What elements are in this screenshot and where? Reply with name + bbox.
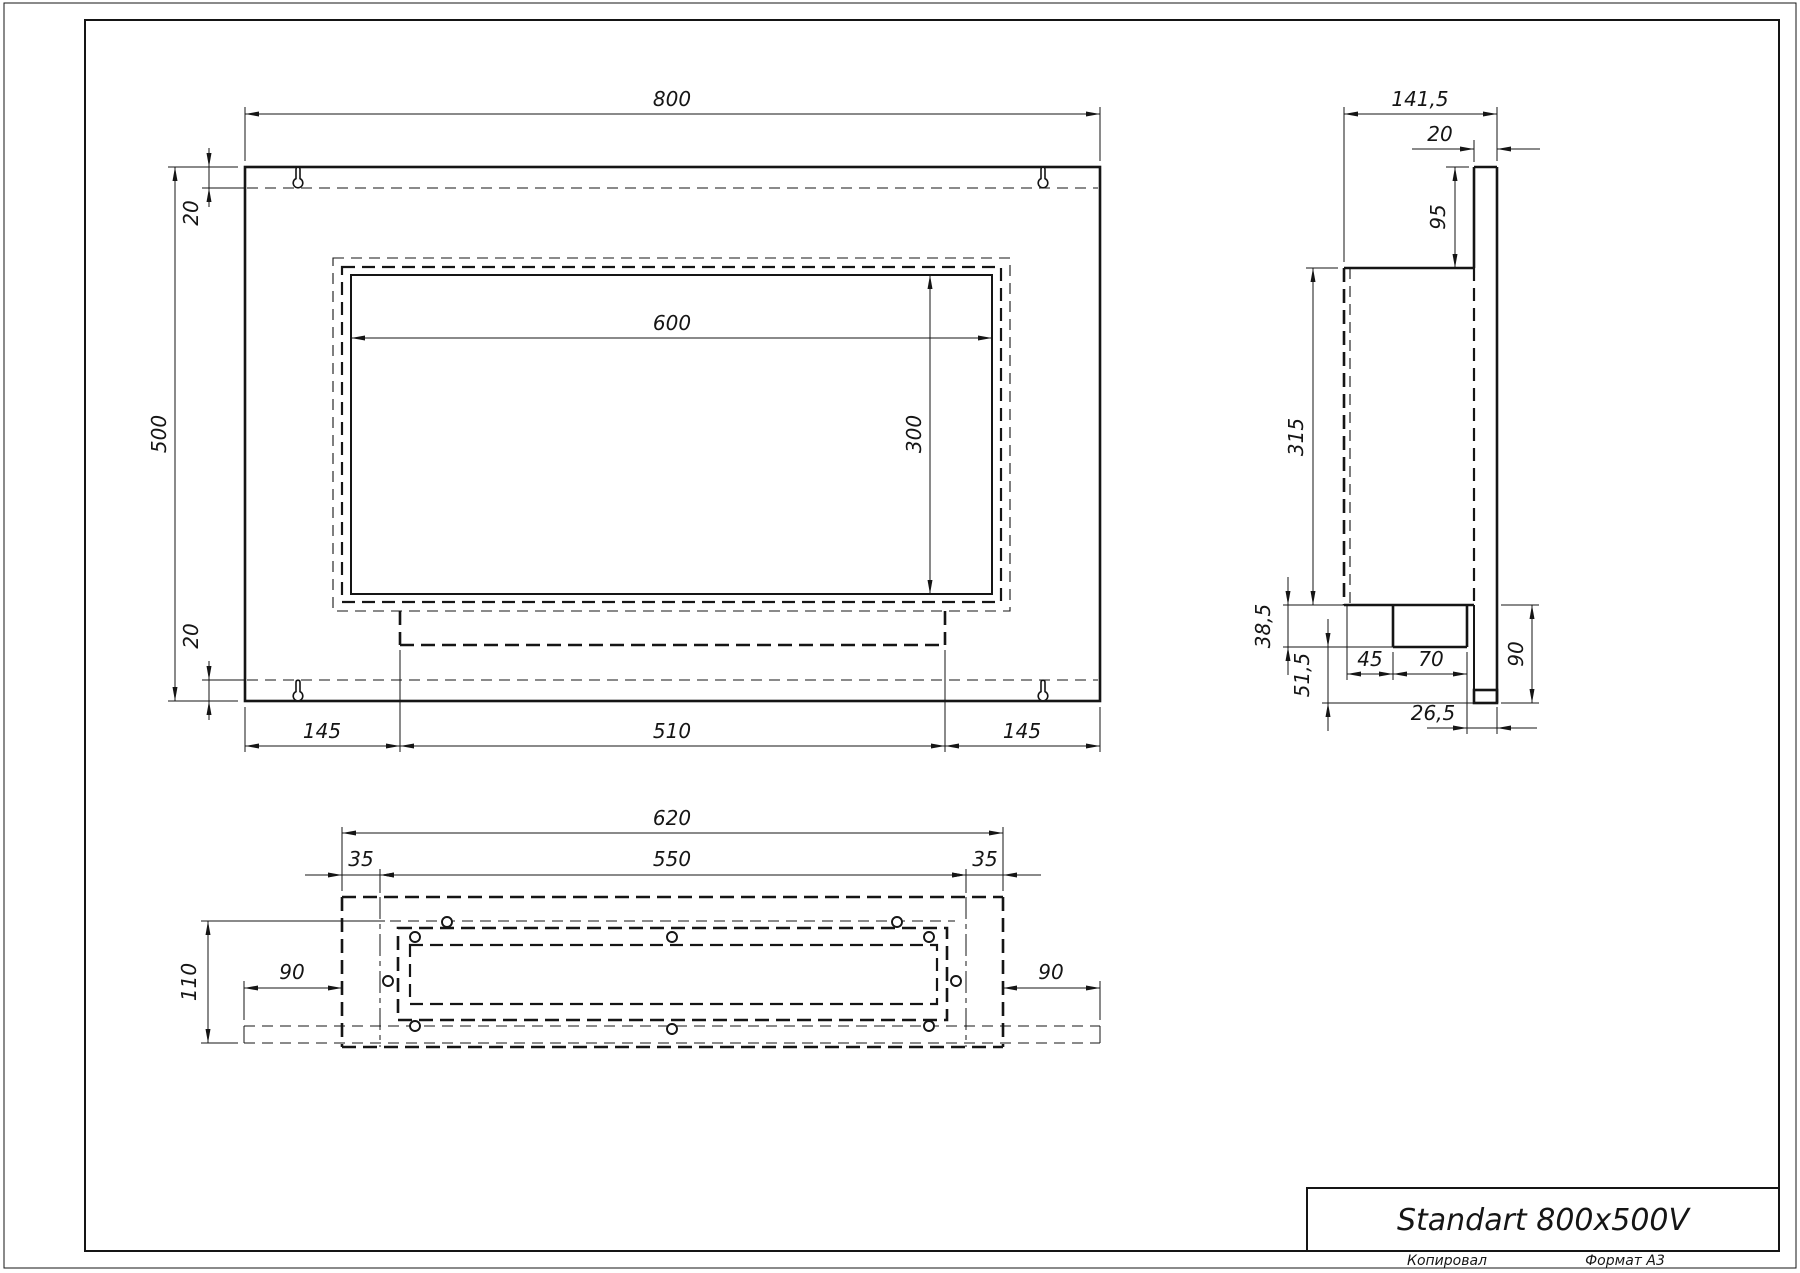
dim-front-width: 800 (245, 87, 1100, 161)
dim-tray-height-label: 38,5 (1251, 604, 1275, 649)
dim-bottom-offset-label: 51,5 (1290, 653, 1314, 698)
dim-flange-bottom-label: 20 (179, 623, 203, 648)
dim-bottom-offset: 51,5 (1290, 619, 1328, 731)
dim-flange-top-label: 20 (179, 200, 203, 225)
side-view: 141,5 20 95 315 38,5 (1251, 87, 1540, 734)
dim-opening-width: 600 (351, 311, 992, 338)
dim-flange-right: 90 (1003, 960, 1100, 1020)
front-view: 800 500 20 20 600 (147, 87, 1100, 752)
dim-rear-gap: 26,5 (1411, 701, 1537, 734)
dim-fold-row: 35 550 35 (305, 847, 1041, 893)
burner-hidden-outline (400, 611, 945, 645)
dim-left-offset-label: 145 (303, 719, 341, 743)
screw-hole-icon (383, 917, 961, 1034)
dim-front-height-label: 500 (147, 415, 171, 453)
dim-total-depth-label: 141,5 (1391, 87, 1448, 111)
format-label: Формат А3 (1585, 1253, 1665, 1269)
dim-lower-height-label: 90 (1504, 641, 1528, 666)
dim-opening-height-label: 300 (902, 415, 926, 453)
copied-label: Копировал (1407, 1253, 1487, 1269)
side-plate-outline (1474, 167, 1497, 703)
dim-panel-thickness-label: 20 (1427, 122, 1452, 146)
dim-burner-depth-label: 70 (1418, 647, 1443, 671)
drawing-sheet: 800 500 20 20 600 (0, 0, 1800, 1273)
dim-top-offset: 95 (1426, 167, 1469, 268)
dim-opening-width-label: 600 (653, 311, 691, 335)
title-block: Standart 800x500V Копировал Формат А3 (1307, 1188, 1779, 1269)
dim-flange-right-label: 90 (1038, 960, 1063, 984)
dim-top-offset-label: 95 (1426, 204, 1450, 229)
dim-tray-height: 38,5 (1251, 577, 1288, 675)
dim-front-height: 500 (147, 167, 238, 701)
dim-flange-bottom: 20 (179, 623, 245, 720)
dim-flange-top: 20 (179, 148, 245, 226)
dim-fold-left-label: 35 (348, 847, 373, 871)
dim-right-offset-label: 145 (1003, 719, 1041, 743)
dim-flange-left-label: 90 (279, 960, 304, 984)
dim-front-width-label: 800 (653, 87, 691, 111)
dim-fold-right-label: 35 (972, 847, 997, 871)
tray-inner-hidden-outline (410, 945, 937, 1004)
sheet-frame (4, 3, 1796, 1268)
dim-depth-label: 110 (177, 963, 201, 1001)
front-panel-outline (245, 167, 1100, 701)
dim-opening-height: 300 (902, 275, 930, 594)
side-body-outline (1344, 268, 1474, 605)
dim-front-gap-label: 45 (1357, 647, 1382, 671)
dim-panel-thickness: 20 (1412, 122, 1540, 162)
dim-box-width-label: 620 (653, 806, 691, 830)
keyhole-icon (293, 167, 1048, 701)
dim-flange-left: 90 (244, 960, 342, 1020)
dim-rear-gap-label: 26,5 (1411, 701, 1456, 725)
bottom-view: 620 35 550 35 110 90 (177, 806, 1100, 1047)
dim-inner-width-label: 550 (653, 847, 691, 871)
technical-drawing: 800 500 20 20 600 (0, 0, 1800, 1273)
dim-body-height: 315 (1284, 268, 1338, 605)
dim-body-height-label: 315 (1284, 418, 1308, 456)
drawing-title: Standart 800x500V (1397, 1203, 1692, 1238)
dim-lower-height: 90 (1501, 605, 1539, 703)
dim-burner-width-label: 510 (653, 719, 691, 743)
